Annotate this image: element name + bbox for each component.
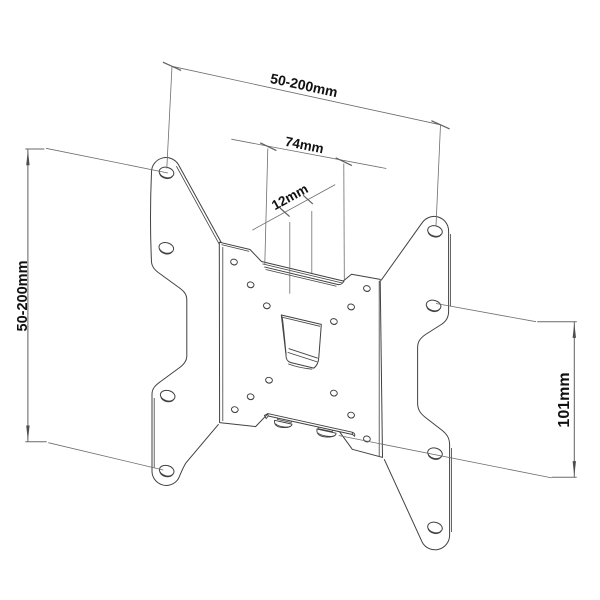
svg-text:101mm: 101mm bbox=[556, 372, 573, 427]
svg-text:50-200mm: 50-200mm bbox=[15, 261, 31, 332]
